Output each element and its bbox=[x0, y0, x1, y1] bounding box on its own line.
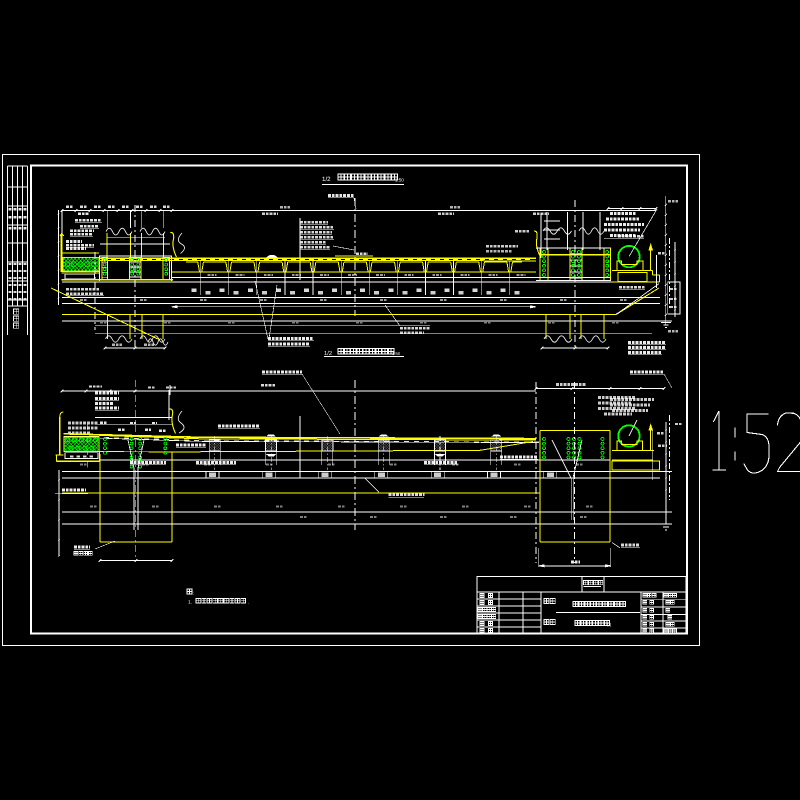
svg-text::: : bbox=[193, 591, 194, 597]
svg-text:1:50: 1:50 bbox=[392, 351, 401, 356]
svg-text:1.: 1. bbox=[188, 600, 192, 606]
svg-text:( ): ( ) bbox=[607, 622, 612, 627]
svg-text:1/2: 1/2 bbox=[322, 176, 331, 183]
svg-text:1/2: 1/2 bbox=[324, 350, 332, 357]
svg-text:.: . bbox=[248, 601, 249, 606]
svg-text:1:50: 1:50 bbox=[395, 178, 404, 183]
